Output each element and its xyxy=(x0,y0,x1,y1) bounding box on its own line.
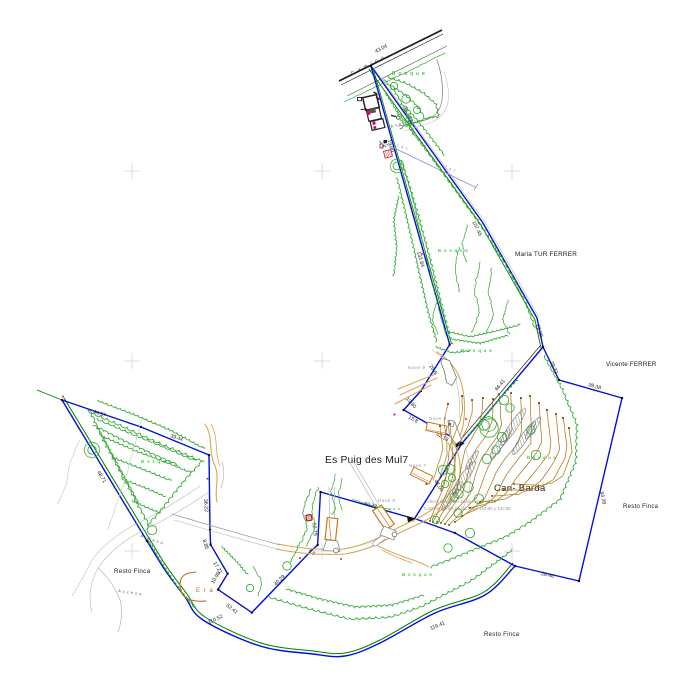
svg-text:B o s q u e: B o s q u e xyxy=(392,71,426,77)
svg-text:Es Puig des Mul7: Es Puig des Mul7 xyxy=(325,455,408,466)
svg-text:Resto Finca: Resto Finca xyxy=(484,632,520,638)
svg-text:Nave 8: Nave 8 xyxy=(429,416,447,421)
svg-text:Vicente FERRER: Vicente FERRER xyxy=(606,361,657,368)
svg-text:Nave 7: Nave 7 xyxy=(409,463,427,468)
svg-text:36.22: 36.22 xyxy=(202,499,209,512)
svg-text:Resto Finca: Resto Finca xyxy=(114,568,151,575)
svg-text:Nave 6: Nave 6 xyxy=(378,498,396,503)
svg-text:E r a: E r a xyxy=(196,588,214,594)
svg-text:B o s q u e: B o s q u e xyxy=(402,572,433,577)
svg-text:Nave 9: Nave 9 xyxy=(408,365,426,370)
svg-text:Can- Barda: Can- Barda xyxy=(494,483,546,494)
svg-text:Resto Finca: Resto Finca xyxy=(623,504,659,510)
svg-text:Maria TUR FERRER: Maria TUR FERRER xyxy=(515,251,577,258)
